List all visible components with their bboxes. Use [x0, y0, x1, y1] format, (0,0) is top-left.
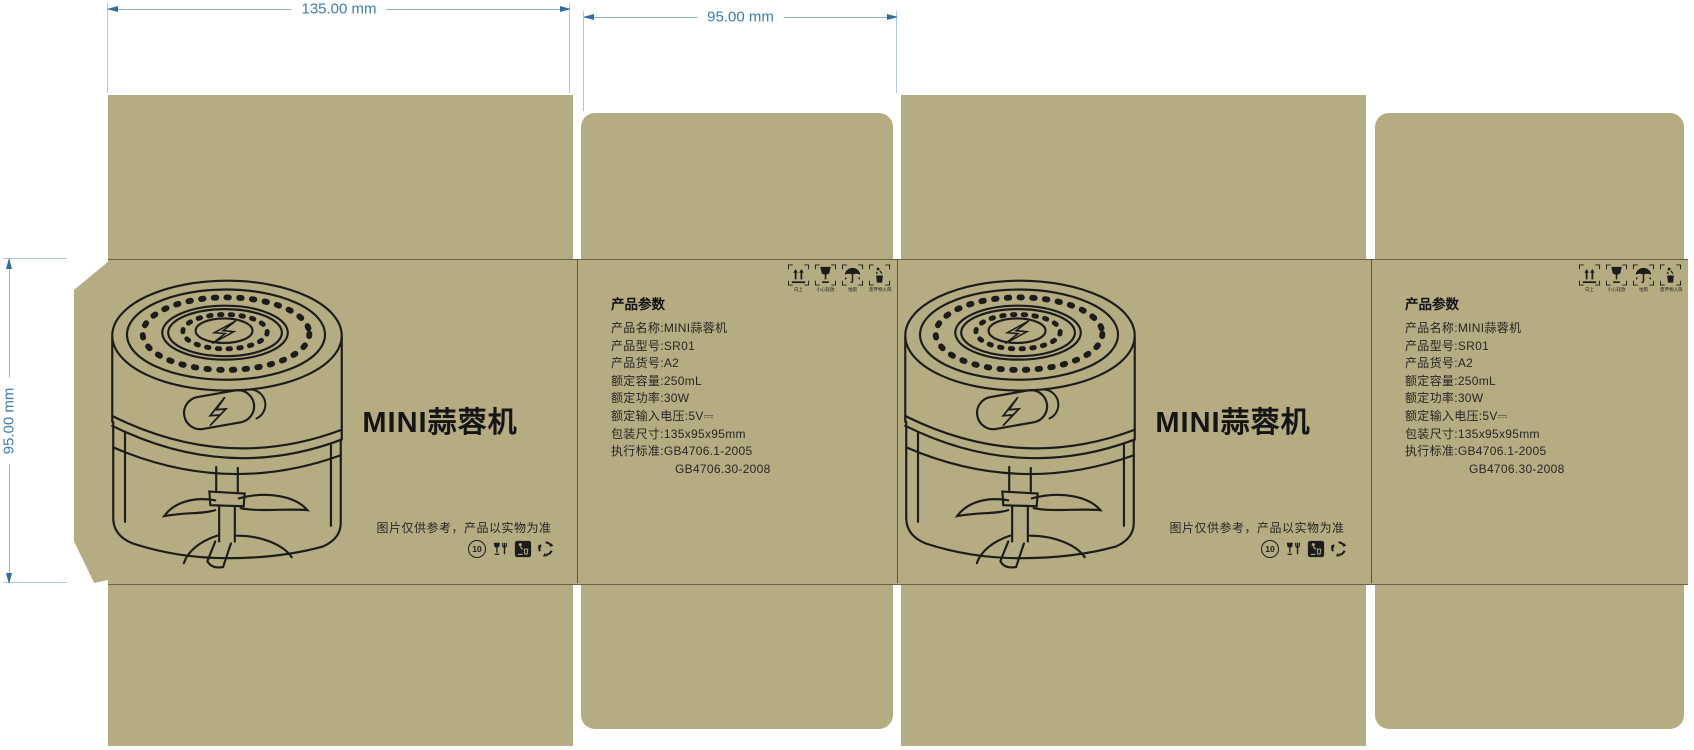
certification-icons: 10: [468, 540, 555, 558]
param-line: 产品货号:A2: [1405, 355, 1565, 373]
param-line: 包装尺寸:135x95x95mm: [1405, 426, 1565, 444]
dimension-height-label: 95.00 mm: [1, 378, 18, 465]
handling-icons: 向上 小心轻放 怕雨: [787, 263, 891, 293]
food-contact-safe-icon: [491, 540, 509, 558]
this-way-up-icon: 向上: [1578, 263, 1601, 293]
tidy-man-icon: [1307, 540, 1325, 558]
this-way-up-icon: 向上: [787, 263, 810, 293]
garlic-chopper-illustration: [108, 265, 356, 569]
side-panel: 向上 小心轻放 怕雨: [577, 259, 897, 583]
garlic-chopper-illustration: [901, 265, 1149, 569]
panel2-bottom-dust-flap: [581, 584, 893, 729]
front-panel: MINI蒜蓉机 图片仅供参考，产品以实物为准 10: [108, 259, 577, 583]
extension-line: [583, 11, 584, 111]
param-line: 额定输入电压:5V⎓: [611, 408, 771, 426]
product-parameters: 产品参数 产品名称:MINI蒜蓉机 产品型号:SR01 产品货号:A2 额定容量…: [1405, 293, 1565, 478]
arrow-left-icon: [107, 6, 118, 12]
param-line: 额定容量:250mL: [1405, 373, 1565, 391]
panel4-top-dust-flap: [1375, 113, 1684, 259]
panel3-top-flap: [901, 95, 1366, 259]
panel2-top-dust-flap: [581, 113, 893, 259]
arrow-up-icon: [6, 258, 12, 269]
param-line: 产品型号:SR01: [611, 338, 771, 356]
fragile-icon: 小心轻放: [1605, 263, 1628, 293]
fold-line: [897, 259, 898, 583]
dimension-width: 135.00 mm: [108, 9, 570, 10]
param-line: 包装尺寸:135x95x95mm: [611, 426, 771, 444]
arrow-right-icon: [560, 6, 571, 12]
extension-line: [3, 582, 67, 583]
certification-icons: 10: [1261, 540, 1348, 558]
handling-icons: 向上 小心轻放 怕雨: [1578, 263, 1682, 293]
arrow-right-icon: [887, 14, 898, 20]
param-line: 额定输入电压:5V⎓: [1405, 408, 1565, 426]
litter-disposal-icon: 废弃物入筒: [1659, 263, 1682, 293]
tidy-man-icon: [514, 540, 532, 558]
keep-dry-icon: 怕雨: [1632, 263, 1655, 293]
param-line: 执行标准:GB4706.1-2005: [611, 443, 771, 461]
disclaimer-text: 图片仅供参考，产品以实物为准: [1147, 519, 1367, 536]
product-title: MINI蒜蓉机: [320, 399, 560, 441]
food-contact-safe-icon: [1284, 540, 1302, 558]
arrow-down-icon: [6, 573, 12, 584]
front-panel: MINI蒜蓉机 图片仅供参考，产品以实物为准 10: [901, 259, 1371, 583]
param-line: GB4706.30-2008: [1405, 461, 1565, 479]
param-line: 额定功率:30W: [611, 390, 771, 408]
product-title: MINI蒜蓉机: [1113, 399, 1353, 441]
arrow-left-icon: [583, 14, 594, 20]
keep-dry-icon: 怕雨: [841, 263, 864, 293]
side-panel: 向上 小心轻放 怕雨: [1371, 259, 1688, 583]
param-line: 产品型号:SR01: [1405, 338, 1565, 356]
extension-line: [3, 258, 67, 259]
extension-line: [896, 11, 897, 93]
fragile-icon: 小心轻放: [814, 263, 837, 293]
panel1-bottom-flap: [108, 584, 573, 746]
dimension-width-label: 135.00 mm: [291, 1, 386, 18]
dimension-side-label: 95.00 mm: [697, 9, 784, 26]
package-dieline-artboard: 135.00 mm 95.00 mm 95.00 mm: [0, 0, 1694, 750]
product-parameters: 产品参数 产品名称:MINI蒜蓉机 产品型号:SR01 产品货号:A2 额定容量…: [611, 293, 771, 478]
parameters-title: 产品参数: [611, 293, 771, 313]
dimension-height: 95.00 mm: [9, 259, 10, 583]
litter-disposal-icon: 废弃物入筒: [868, 263, 891, 293]
panel4-bottom-dust-flap: [1375, 584, 1684, 729]
recycle-icon: [1330, 540, 1348, 558]
extension-line: [107, 3, 108, 93]
parameters-title: 产品参数: [1405, 293, 1565, 313]
param-line: GB4706.30-2008: [611, 461, 771, 479]
panel1-top-flap: [108, 95, 573, 259]
glue-flap: [70, 261, 109, 583]
dimension-side: 95.00 mm: [584, 17, 897, 18]
extension-line: [569, 3, 570, 93]
param-line: 产品名称:MINI蒜蓉机: [611, 320, 771, 338]
param-line: 产品货号:A2: [611, 355, 771, 373]
environment-period-icon: 10: [468, 540, 486, 558]
param-line: 额定功率:30W: [1405, 390, 1565, 408]
recycle-icon: [537, 540, 555, 558]
panel3-bottom-flap: [901, 584, 1366, 746]
param-line: 产品名称:MINI蒜蓉机: [1405, 320, 1565, 338]
param-line: 执行标准:GB4706.1-2005: [1405, 443, 1565, 461]
disclaimer-text: 图片仅供参考，产品以实物为准: [354, 519, 574, 536]
environment-period-icon: 10: [1261, 540, 1279, 558]
param-line: 额定容量:250mL: [611, 373, 771, 391]
